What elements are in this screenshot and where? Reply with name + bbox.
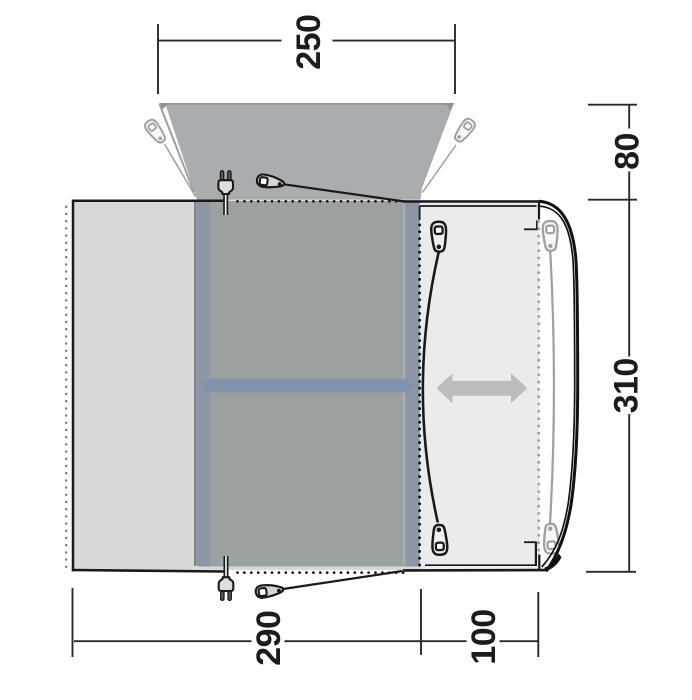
svg-text:100: 100: [465, 609, 503, 664]
svg-text:310: 310: [608, 358, 646, 413]
svg-text:80: 80: [608, 133, 646, 170]
svg-text:250: 250: [290, 15, 328, 70]
svg-text:290: 290: [250, 611, 288, 666]
